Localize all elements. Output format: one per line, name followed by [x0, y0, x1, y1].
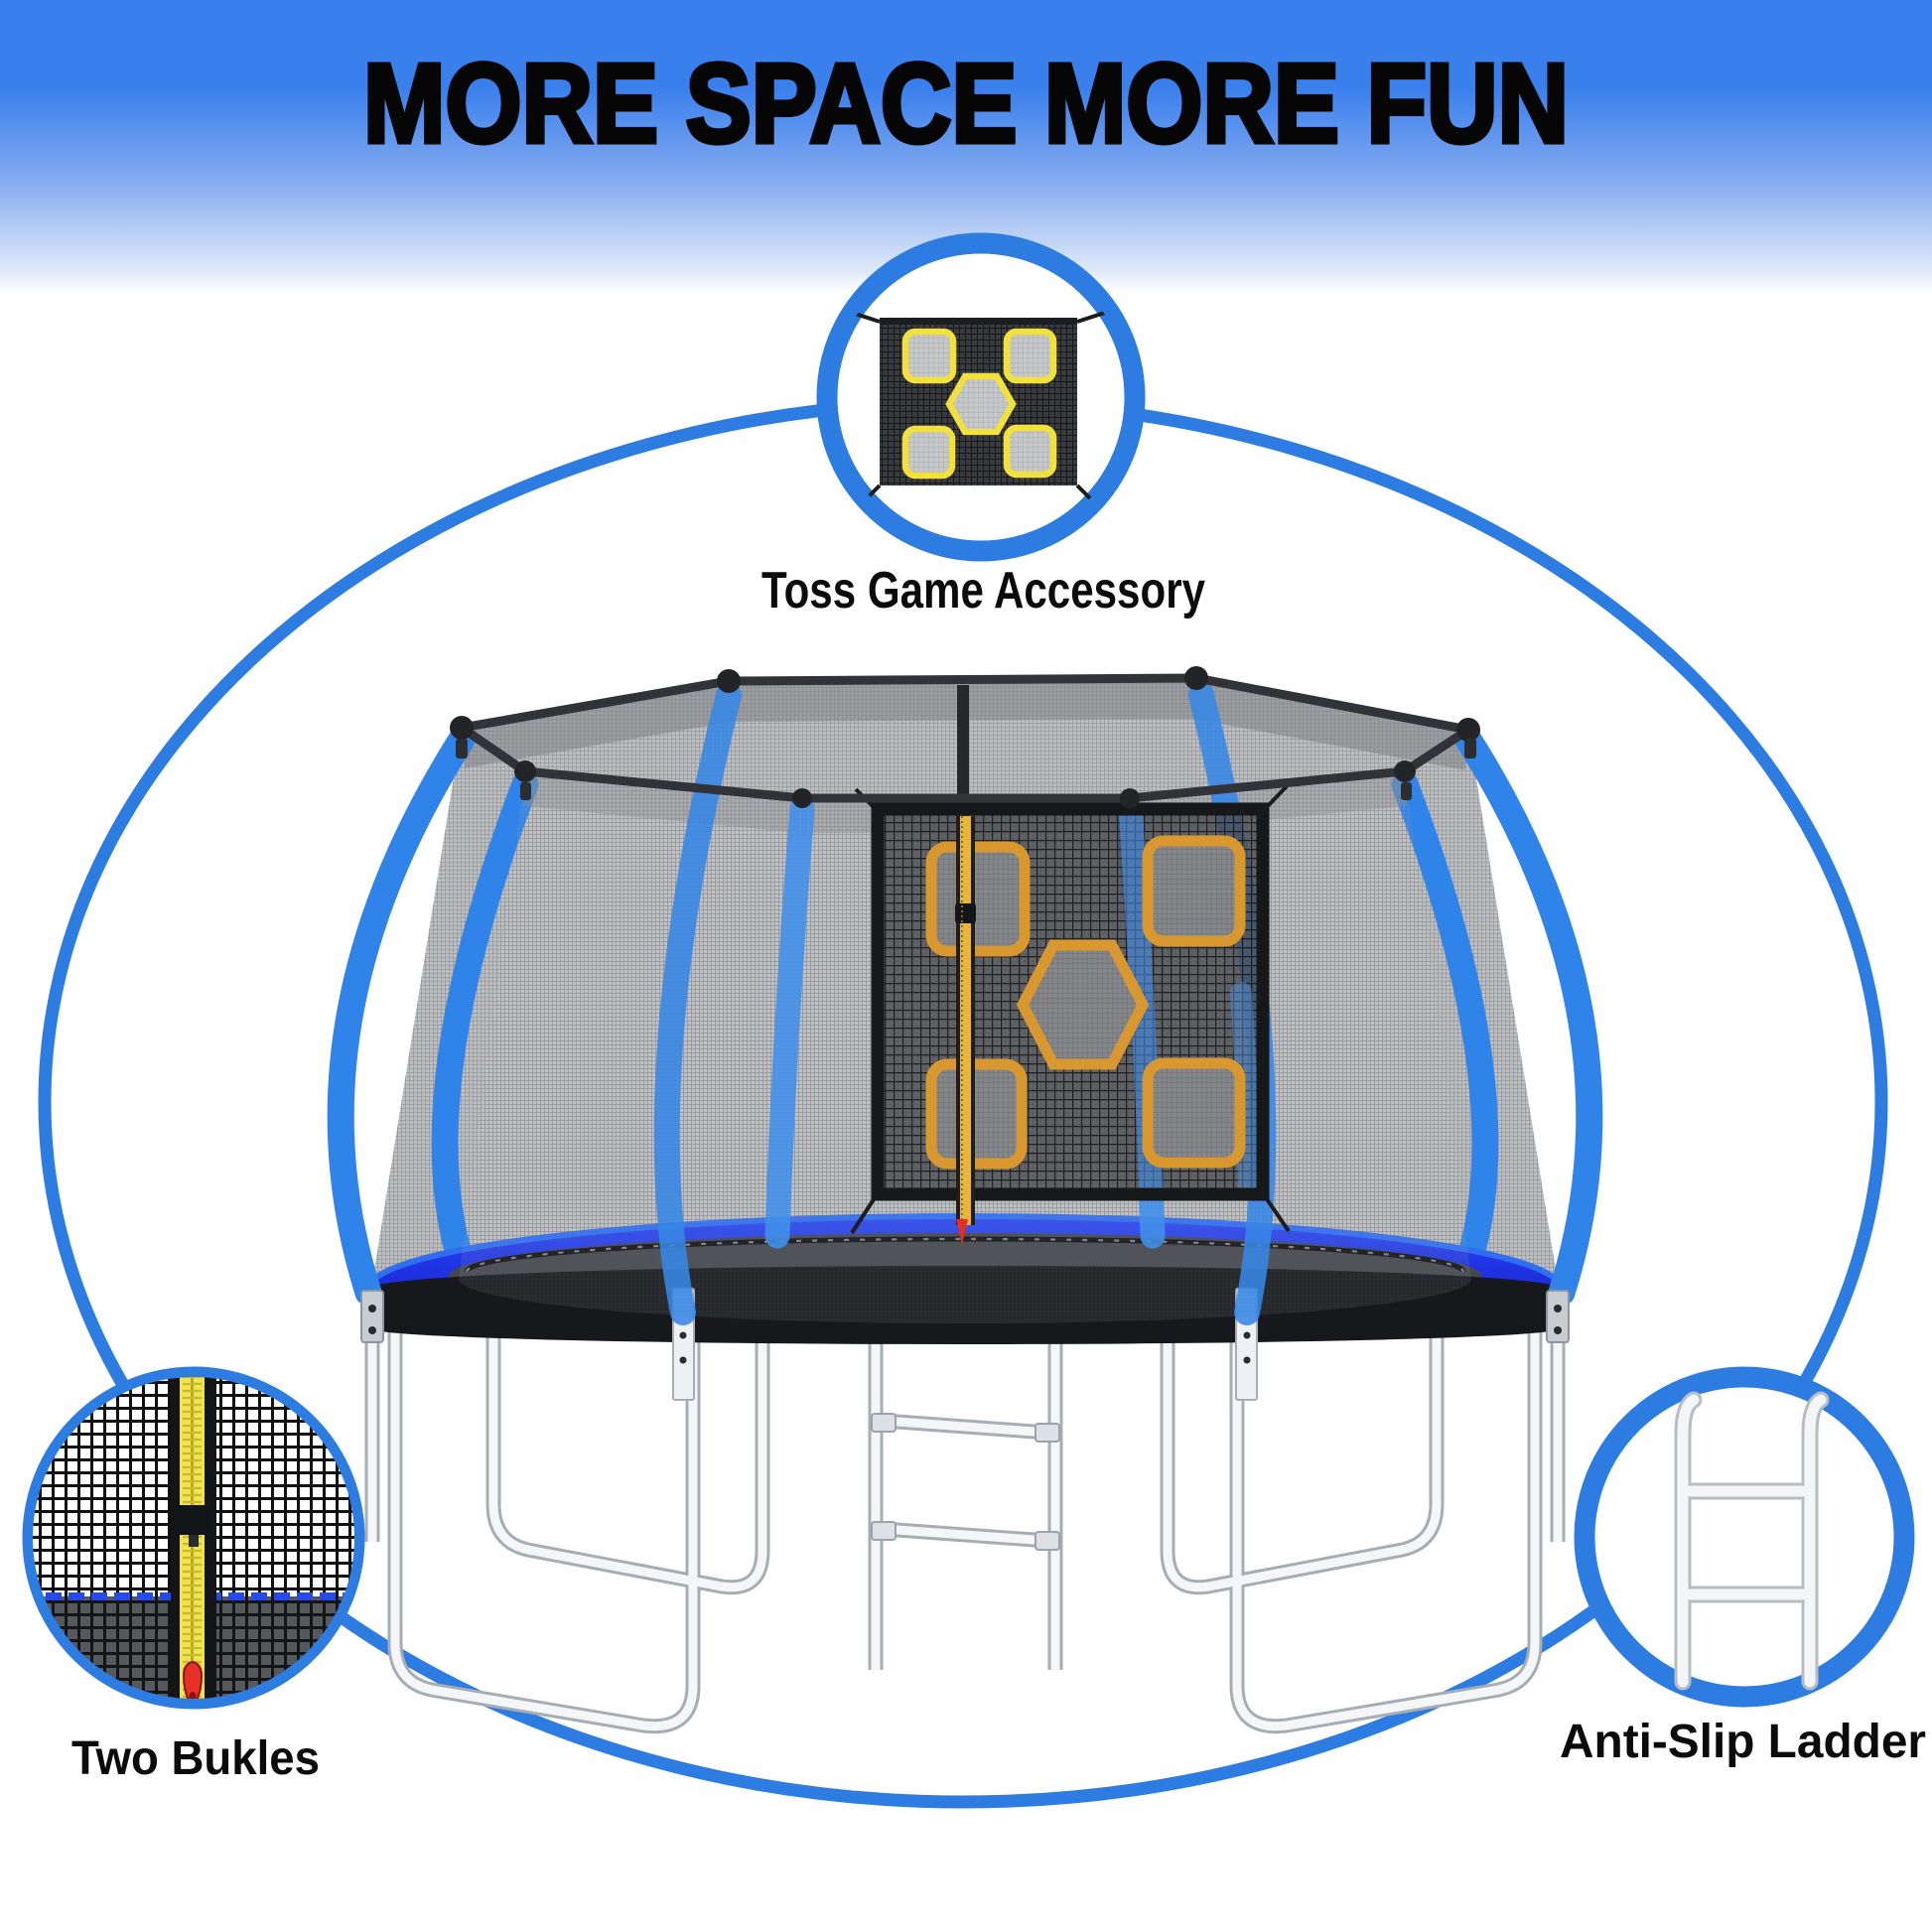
svg-text:MORE SPACE MORE FUN: MORE SPACE MORE FUN — [363, 41, 1569, 166]
svg-text:Two Bukles: Two Bukles — [71, 1732, 320, 1785]
svg-text:Toss Game Accessory: Toss Game Accessory — [761, 562, 1205, 620]
svg-text:Anti-Slip Ladder: Anti-Slip Ladder — [1560, 1716, 1926, 1768]
